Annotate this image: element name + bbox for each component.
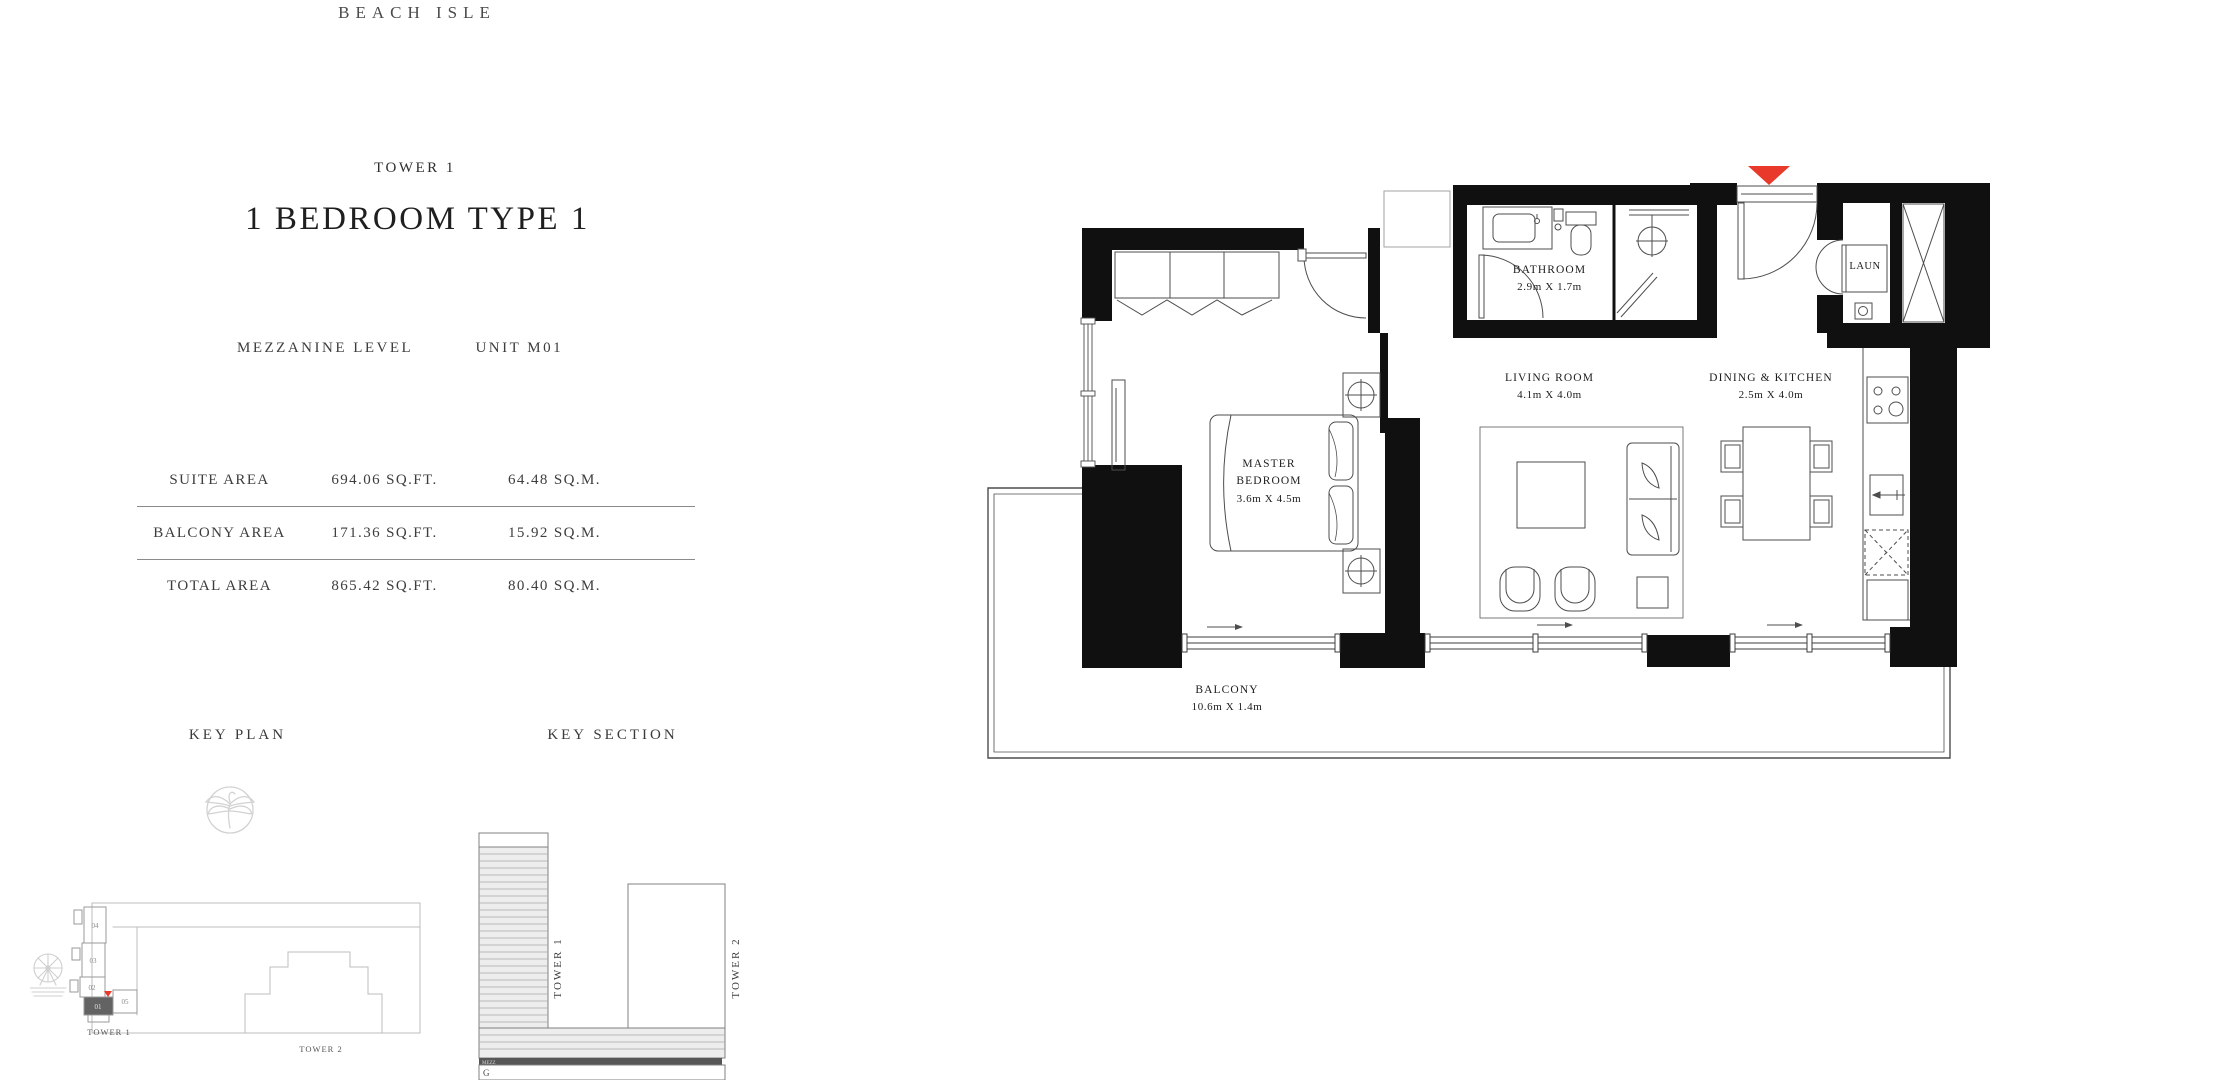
unit-label: UNIT M01 [475, 340, 563, 357]
room-dims: 3.6m X 4.5m [1227, 491, 1311, 508]
unit-number: 04 [92, 922, 100, 930]
area-table: SUITE AREA 694.06 SQ.FT. 64.48 SQ.M. BAL… [137, 454, 695, 612]
slide-direction-arrows [1207, 622, 1803, 630]
room-label-dining-kitchen: DINING & KITCHEN 2.5m X 4.0m [1682, 370, 1860, 404]
site-outline [92, 903, 420, 1033]
stove [1867, 377, 1908, 423]
dining-chair [1810, 496, 1832, 527]
key-plan-tower1-label: TOWER 1 [87, 1027, 130, 1037]
section-ground [479, 1065, 725, 1080]
row-label: SUITE AREA [137, 472, 302, 489]
balcony-windows [1182, 634, 1890, 652]
armchair [1555, 567, 1595, 611]
ground-label: G [483, 1068, 490, 1078]
key-section-heading: KEY SECTION [535, 727, 690, 744]
dining-chair [1810, 441, 1832, 472]
row-sqft: 171.36 SQ.FT. [302, 525, 467, 542]
room-dims: 4.1m X 4.0m [1477, 387, 1622, 404]
dining-chair [1721, 496, 1743, 527]
dishwasher [1865, 530, 1908, 575]
room-name: MASTER BEDROOM [1227, 456, 1311, 491]
row-sqm: 64.48 SQ.M. [467, 472, 642, 489]
bedroom-window [1081, 318, 1095, 467]
room-label-laundry: LAUN [1840, 259, 1890, 275]
unit-number-highlighted: 01 [95, 1003, 103, 1011]
table-row: BALCONY AREA 171.36 SQ.FT. 15.92 SQ.M. [137, 507, 695, 560]
table-row: SUITE AREA 694.06 SQ.FT. 64.48 SQ.M. [137, 454, 695, 507]
bedroom-console [1112, 380, 1125, 470]
unit-number: 03 [90, 957, 98, 965]
room-label-master-bedroom: MASTER BEDROOM 3.6m X 4.5m [1227, 456, 1311, 507]
laundry-door [1816, 240, 1843, 294]
toilet [1566, 212, 1596, 255]
tower-label: TOWER 1 [340, 160, 490, 177]
row-label: TOTAL AREA [137, 578, 302, 595]
armchair [1500, 567, 1540, 611]
section-tower1-label: TOWER 1 [552, 937, 564, 998]
row-sqft: 694.06 SQ.FT. [302, 472, 467, 489]
section-tower1 [479, 833, 548, 1028]
room-name: DINING & KITCHEN [1682, 370, 1860, 387]
key-plan-tower2-label: TOWER 2 [299, 1044, 342, 1054]
row-sqft: 865.42 SQ.FT. [302, 578, 467, 595]
room-dims: 2.9m X 1.7m [1482, 279, 1617, 296]
room-dims: 2.5m X 4.0m [1682, 387, 1860, 404]
section-tower2 [628, 884, 725, 1028]
kitchen-cabinet [1867, 580, 1908, 620]
room-label-balcony: BALCONY 10.6m X 1.4m [1152, 682, 1302, 716]
dining-chair [1721, 441, 1743, 472]
table-row: TOTAL AREA 865.42 SQ.FT. 80.40 SQ.M. [137, 560, 695, 612]
brand-title: BEACH ISLE [267, 3, 567, 23]
key-plan-heading: KEY PLAN [160, 727, 315, 744]
bedroom-door [1298, 249, 1366, 318]
unit-number: 05 [122, 998, 130, 1006]
room-name: BATHROOM [1482, 262, 1617, 279]
unit-number: 02 [89, 984, 97, 992]
row-label: BALCONY AREA [137, 525, 302, 542]
key-section-drawing: MEZZ G TOWER 1 TOWER 2 [470, 823, 780, 1080]
key-plan-drawing: 04 03 02 01 05 TOWER 1 TOWER 2 [30, 782, 440, 1067]
shower [1617, 210, 1689, 317]
palm-island-icon [206, 787, 254, 833]
level-unit-row: MEZZANINE LEVEL UNIT M01 [237, 340, 563, 357]
room-name: LIVING ROOM [1477, 370, 1622, 387]
section-mezzanine-highlight [479, 1058, 722, 1065]
room-dims: 10.6m X 1.4m [1152, 699, 1302, 716]
entry-door [1737, 186, 1817, 279]
bathroom-vanity [1483, 207, 1552, 249]
row-sqm: 15.92 SQ.M. [467, 525, 642, 542]
level-label: MEZZANINE LEVEL [237, 340, 413, 357]
walls [1082, 183, 1990, 668]
nightstand [1343, 549, 1380, 593]
coffee-table [1517, 462, 1585, 528]
section-podium [479, 1028, 725, 1058]
entry-marker-icon [1748, 166, 1790, 185]
side-table [1637, 577, 1668, 608]
nightstand [1343, 373, 1380, 417]
room-label-bathroom: BATHROOM 2.9m X 1.7m [1482, 262, 1617, 296]
row-sqm: 80.40 SQ.M. [467, 578, 642, 595]
sofa [1627, 443, 1679, 555]
room-label-living-room: LIVING ROOM 4.1m X 4.0m [1477, 370, 1622, 404]
floor-plan: MASTER BEDROOM 3.6m X 4.5m BATHROOM 2.9m… [977, 163, 1997, 775]
section-tower2-label: TOWER 2 [730, 937, 742, 998]
kitchen-sink [1870, 475, 1905, 515]
page-title: 1 BEDROOM TYPE 1 [145, 201, 690, 238]
bathroom-fixture [1554, 209, 1563, 230]
wardrobe [1115, 252, 1279, 315]
ferris-wheel-icon [30, 954, 66, 996]
laundry-closet [1842, 245, 1887, 319]
exterior-niche [1384, 191, 1450, 247]
closet-x [1903, 204, 1944, 322]
room-name: BALCONY [1152, 682, 1302, 699]
dining-table [1743, 427, 1810, 540]
floorplan-brochure-page: BEACH ISLE TOWER 1 1 BEDROOM TYPE 1 MEZZ… [0, 0, 2220, 1080]
